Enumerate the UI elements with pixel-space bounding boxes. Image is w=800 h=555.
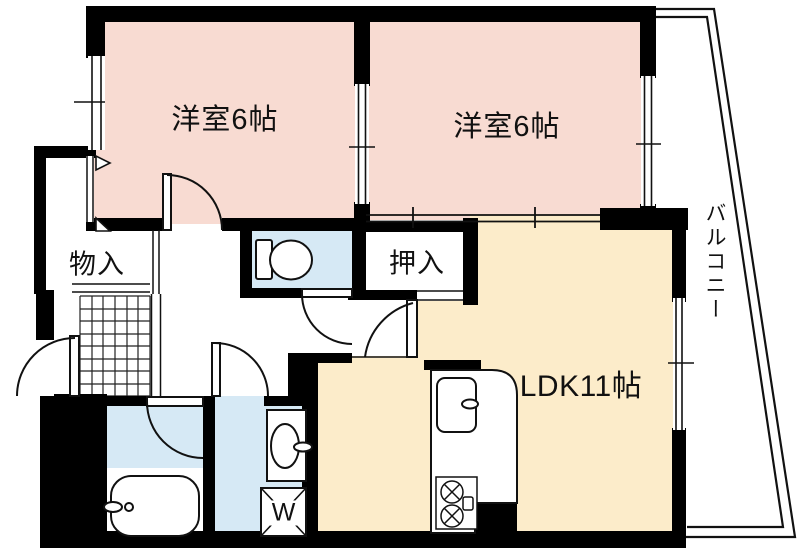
ldk-door: [365, 300, 417, 357]
bed2-balcony-window: [641, 76, 655, 206]
wall-entry-left: [36, 290, 54, 340]
bathtub-icon: [104, 476, 199, 536]
entrance-tile-grid: [80, 296, 150, 396]
wall-closet-top: [352, 222, 478, 232]
entry-opening: [36, 340, 54, 396]
toilet-icon: [256, 240, 312, 280]
closet-label: 押入: [389, 242, 445, 281]
ldk-balcony-window: [673, 298, 685, 430]
washroom-door: [212, 343, 268, 396]
wall-ldk-right-lower: [672, 428, 686, 538]
wall-ldk-right-upper: [672, 208, 686, 302]
wall-partition-lower: [354, 202, 370, 222]
floorplan-canvas: 洋室6帖 洋室6帖 LDK11帖 押入 物入 バルコニー W: [0, 0, 800, 555]
wall-toilet-bottom: [240, 288, 303, 298]
room-fills: [88, 14, 678, 540]
wall-kitchen-top-bar: [424, 360, 481, 370]
ldk-label: LDK11帖: [520, 361, 643, 405]
bedroom1-label: 洋室6帖: [171, 96, 278, 138]
bed1-left-window: [88, 56, 105, 150]
storage-right-edge: [153, 230, 159, 294]
gas-stove-icon: [436, 477, 477, 529]
wall-bath-top: [103, 396, 149, 406]
entrance-step-edge: [152, 294, 161, 396]
bedroom-partition-window: [355, 84, 369, 204]
wall-bath-washroom-divider: [203, 396, 215, 536]
ldk-floor3: [314, 356, 422, 536]
washing-machine-label: W: [270, 501, 299, 526]
wall-storage-left: [34, 146, 46, 294]
wall-closet-right: [463, 218, 478, 305]
wall-washroom-top: [264, 396, 304, 406]
wall-partition-upper: [354, 6, 370, 86]
vanity-sink-icon: [267, 410, 312, 481]
balcony-label: バルコニー: [699, 202, 729, 322]
wall-mass-southwest: [40, 394, 107, 548]
storage-label: 物入: [69, 243, 125, 282]
wall-bed1-left-upper: [86, 6, 105, 58]
toilet-door: [302, 289, 352, 344]
wall-toilet-left: [240, 218, 252, 298]
bedroom2-label: 洋室6帖: [453, 103, 560, 145]
wall-top: [86, 6, 656, 22]
wall-kitchen-end-block: [475, 503, 517, 537]
wall-closet-bottom: [348, 290, 417, 300]
wall-bed2-right-upper: [640, 6, 656, 78]
